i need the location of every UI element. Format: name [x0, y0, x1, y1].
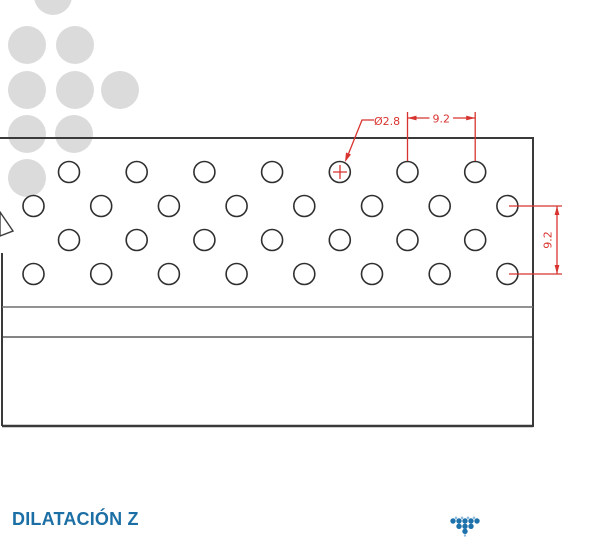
perforation-hole [362, 196, 383, 217]
perforation-hole [23, 264, 44, 285]
perforation-hole [294, 196, 315, 217]
vertical-pitch-label: 9.2 [542, 231, 555, 249]
perforation-hole [194, 230, 215, 251]
decor-dot [8, 71, 46, 109]
dimension-annotations: Ø2.8 9.2 9.2 [333, 112, 562, 275]
vertical-dim-top-arrowhead-icon [555, 206, 560, 215]
perforation-hole [397, 230, 418, 251]
decor-dot [8, 115, 46, 153]
perforation-hole [397, 162, 418, 183]
perforation-hole [465, 230, 486, 251]
logo-dots-icon [450, 516, 486, 538]
perforation-hole [91, 196, 112, 217]
technical-drawing-canvas: Ø2.8 9.2 9.2 [0, 0, 600, 541]
perforation-hole [294, 264, 315, 285]
page-title: DILATACIÓN Z [12, 509, 139, 530]
decor-dot [55, 115, 93, 153]
perforation-hole [262, 162, 283, 183]
perforation-hole [226, 264, 247, 285]
perforation-hole [262, 230, 283, 251]
perforation-hole [194, 162, 215, 183]
decor-dot [34, 0, 72, 15]
perforation-hole [429, 264, 450, 285]
perforation-hole [126, 162, 147, 183]
horizontal-dim-right-arrowhead-icon [466, 116, 475, 121]
hole-diameter-label: Ø2.8 [374, 115, 400, 128]
decor-dot [101, 71, 139, 109]
diameter-leader-line [346, 120, 374, 160]
perforation-hole [158, 196, 179, 217]
vertical-dim-bottom-arrowhead-icon [555, 265, 560, 274]
perforation-hole [126, 230, 147, 251]
page: Ø2.8 9.2 9.2 DILATACIÓN Z [0, 0, 600, 541]
horizontal-pitch-label: 9.2 [433, 113, 451, 126]
perforation-hole [59, 162, 80, 183]
decor-dot [56, 26, 94, 64]
perforation-hole [23, 196, 44, 217]
perforation-hole [226, 196, 247, 217]
perforation-hole [465, 162, 486, 183]
perforation-hole [59, 230, 80, 251]
horizontal-dim-left-arrowhead-icon [408, 116, 417, 121]
perforation-hole [429, 196, 450, 217]
perforation-hole [329, 230, 350, 251]
decor-dot [8, 159, 46, 197]
perforation-hole [91, 264, 112, 285]
decor-dot [8, 26, 46, 64]
section-arrow-marker [0, 212, 13, 236]
hole-pattern [23, 162, 518, 285]
perforation-hole [362, 264, 383, 285]
diameter-leader-arrowhead-icon [345, 153, 351, 163]
perforation-hole [158, 264, 179, 285]
decor-dot [56, 71, 94, 109]
